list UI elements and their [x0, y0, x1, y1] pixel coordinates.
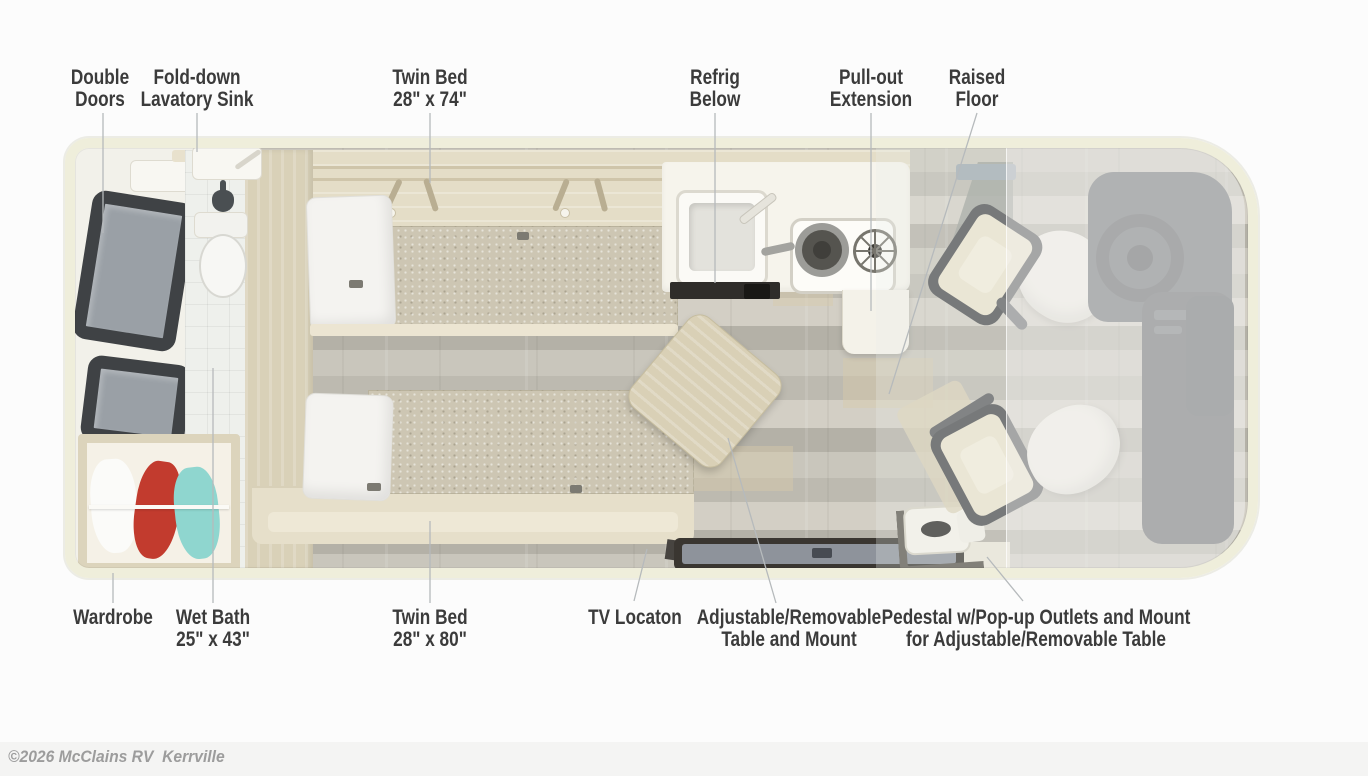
leader-adjustable-table — [728, 438, 776, 603]
leader-raised-floor — [889, 113, 977, 394]
leader-lines — [0, 0, 1368, 776]
leader-tv-location — [634, 549, 647, 601]
floorplan-page: Double Doors Fold-down Lavatory Sink Twi… — [0, 0, 1368, 776]
leader-pedestal — [987, 557, 1023, 601]
